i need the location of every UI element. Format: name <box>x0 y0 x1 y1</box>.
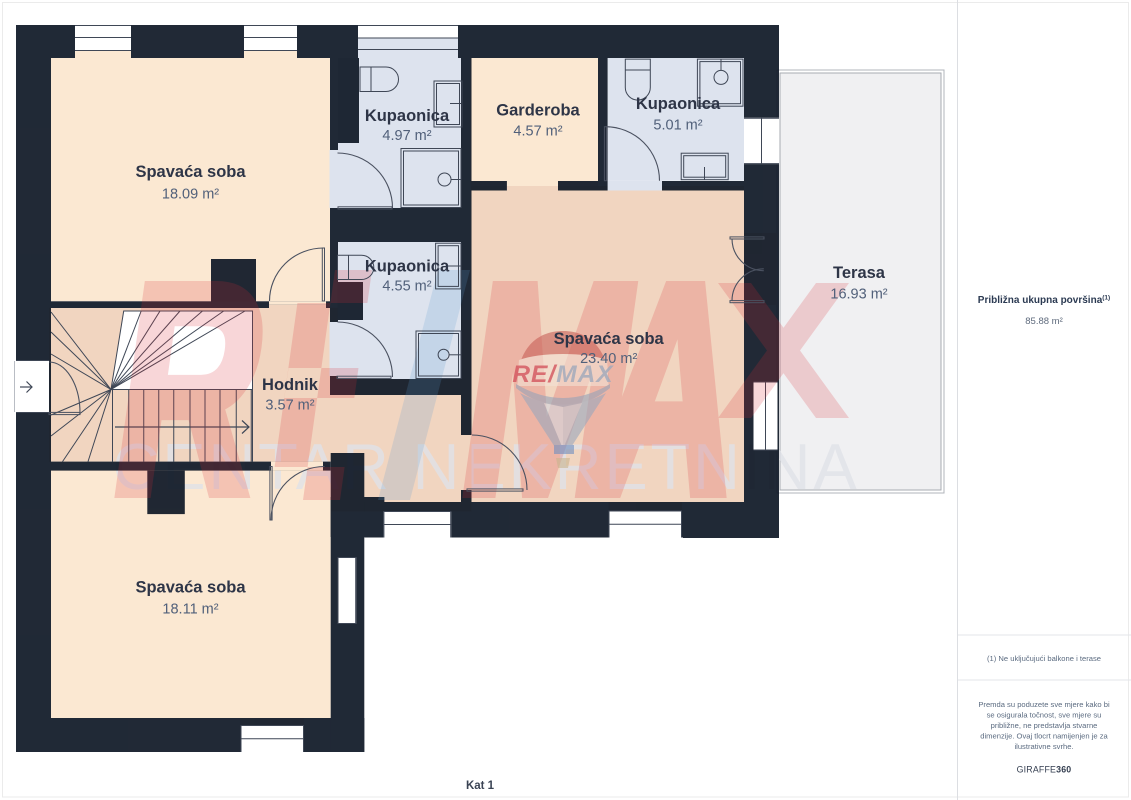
svg-text:Premda su poduzete sve mjere k: Premda su poduzete sve mjere kako bi <box>978 700 1110 709</box>
svg-text:18.09 m²: 18.09 m² <box>162 187 219 203</box>
svg-text:(1) Ne uključujući balkone i t: (1) Ne uključujući balkone i terase <box>987 654 1101 663</box>
svg-text:4.57 m²: 4.57 m² <box>513 124 562 140</box>
svg-text:Hodnik: Hodnik <box>262 376 319 394</box>
svg-text:23.40 m²: 23.40 m² <box>580 351 637 367</box>
svg-text:Kupaonica: Kupaonica <box>365 107 450 125</box>
svg-text:85.88 m²: 85.88 m² <box>1025 316 1063 327</box>
svg-text:Spavaća soba: Spavaća soba <box>135 579 246 597</box>
svg-text:Kat 1: Kat 1 <box>466 780 495 792</box>
svg-text:dimenzije. Ovaj tlocrt namijen: dimenzije. Ovaj tlocrt namijenjen je za <box>980 732 1108 741</box>
svg-text:Terasa: Terasa <box>833 264 886 282</box>
svg-text:4.97 m²: 4.97 m² <box>382 128 431 144</box>
svg-text:Spavaća soba: Spavaća soba <box>135 163 246 181</box>
svg-text:Približna ukupna površina(1): Približna ukupna površina(1) <box>978 295 1110 307</box>
svg-text:Spavaća soba: Spavaća soba <box>554 330 665 348</box>
svg-text:Kupaonica: Kupaonica <box>636 95 721 113</box>
svg-text:3.57 m²: 3.57 m² <box>265 398 314 414</box>
svg-text:4.55 m²: 4.55 m² <box>382 279 431 295</box>
svg-text:16.93 m²: 16.93 m² <box>830 287 887 303</box>
svg-text:18.11 m²: 18.11 m² <box>162 602 218 618</box>
svg-text:se osigurala točnost, sve mjer: se osigurala točnost, sve mjere su <box>987 711 1102 720</box>
svg-text:približne, ne predstavlja stva: približne, ne predstavlja stvarne <box>991 721 1098 730</box>
svg-text:ilustrativne svrhe.: ilustrativne svrhe. <box>1014 742 1073 751</box>
svg-text:Kupaonica: Kupaonica <box>365 258 450 276</box>
svg-text:5.01 m²: 5.01 m² <box>653 118 702 134</box>
svg-text:GIRAFFE360: GIRAFFE360 <box>1017 765 1072 775</box>
svg-text:Garderoba: Garderoba <box>496 102 580 120</box>
